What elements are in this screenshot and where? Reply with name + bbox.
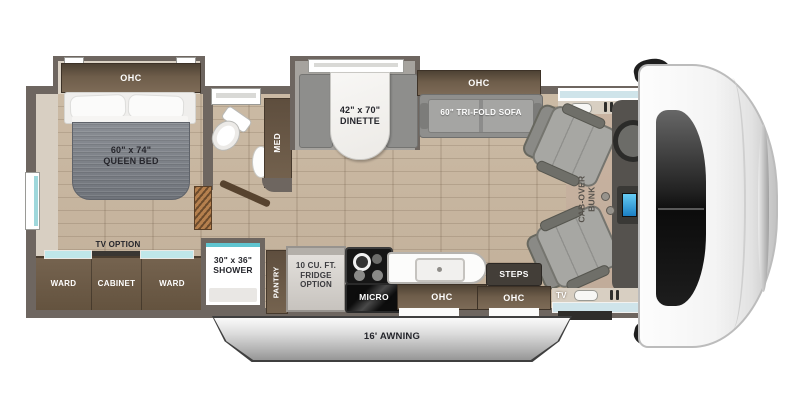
awning: 16' AWNING — [212, 316, 572, 362]
living-ohc-cabinet: OHC — [417, 70, 541, 96]
rear-window-glass — [34, 176, 38, 226]
fridge-line3: OPTION — [288, 280, 344, 290]
burner-ring — [353, 253, 371, 271]
ward-left-label: WARD — [51, 279, 77, 288]
shower-label: 30" x 36" SHOWER — [206, 255, 260, 275]
med-cabinet: MED — [264, 98, 292, 188]
ward-left: WARD — [36, 258, 92, 310]
dinette-bench-right — [386, 74, 418, 148]
fridge-line1: 10 CU. FT. — [288, 261, 344, 271]
cabinet-label: CABINET — [98, 279, 136, 288]
shower-name: SHOWER — [206, 265, 260, 275]
trifold-sofa: 60" TRI-FOLD SOFA — [419, 94, 543, 138]
console-screen — [622, 193, 637, 217]
rear-window — [25, 172, 40, 230]
cab-sill-mark-1 — [610, 290, 613, 300]
entry-ohc-label: OHC — [503, 293, 525, 303]
microwave: MICRO — [345, 283, 403, 313]
cab-over-bunk: CAB-OVER BUNK — [566, 168, 606, 230]
kitchen-bottom-window — [399, 308, 459, 317]
bed-name: QUEEN BED — [73, 156, 189, 167]
fridge-line2: FRIDGE — [288, 271, 344, 281]
kitchen-counter — [387, 252, 487, 284]
fridge-top-band — [288, 248, 344, 255]
burner-2 — [372, 270, 383, 281]
bedroom-ohc-cabinet: OHC — [61, 63, 201, 93]
floorplan-canvas: OHC 60" x 74" QUEEN BED MED 42" x 70" DI… — [0, 0, 800, 408]
med-label: MED — [273, 133, 283, 153]
kitchen-ohc-label: OHC — [431, 292, 453, 302]
fridge-label: 10 CU. FT. FRIDGE OPTION — [288, 261, 344, 290]
bed-label: 60" x 74" QUEEN BED — [73, 145, 189, 167]
dinette-table: 42" x 70" DINETTE — [330, 72, 390, 160]
pantry: PANTRY — [266, 250, 288, 314]
bath-wall-corner — [262, 178, 292, 192]
entry-door — [489, 308, 539, 317]
bunk-label-line1: CAB-OVER — [576, 176, 586, 223]
console-knob-1 — [601, 192, 610, 201]
shower: 30" x 36" SHOWER — [201, 238, 265, 310]
sofa-label: 60" TRI-FOLD SOFA — [420, 108, 542, 117]
burner-3 — [372, 254, 382, 264]
microwave-label: MICRO — [359, 293, 389, 303]
dinette-label: 42" x 70" DINETTE — [331, 105, 389, 127]
bed-size: 60" x 74" — [73, 145, 189, 156]
dinette-bench-left — [299, 74, 333, 148]
cab-sill-bottom: TV — [552, 288, 642, 302]
windshield-seam — [658, 208, 704, 210]
dinette-window-glass — [314, 63, 398, 67]
awning-fabric: 16' AWNING — [214, 318, 570, 360]
cab-sill-mark-2 — [616, 290, 619, 300]
bedroom-ohc-label: OHC — [120, 73, 142, 83]
entry-ohc-cabinet: OHC — [477, 286, 551, 310]
bunk-label-line2: BUNK — [586, 176, 596, 223]
bedroom-window-left — [44, 250, 92, 259]
cab-window-top-glass — [560, 91, 640, 98]
front-bumper — [758, 124, 769, 292]
accordion-door — [194, 186, 212, 230]
dinette-name: DINETTE — [331, 116, 389, 127]
cab-tv-label: TV — [556, 291, 567, 300]
living-ohc-label: OHC — [468, 78, 490, 88]
cooktop — [345, 247, 393, 285]
hood-accent-line — [718, 78, 746, 330]
steps-label: STEPS — [499, 270, 528, 280]
console-knob-2 — [606, 206, 615, 215]
bed-blanket: 60" x 74" QUEEN BED — [72, 122, 190, 200]
fridge: 10 CU. FT. FRIDGE OPTION — [286, 246, 346, 312]
faucet — [437, 267, 442, 272]
pantry-label: PANTRY — [273, 266, 282, 298]
shower-size: 30" x 36" — [206, 255, 260, 265]
shower-accent — [206, 243, 260, 247]
front-cap — [638, 64, 778, 348]
bedroom-lower-cabinets: WARD CABINET WARD — [36, 256, 202, 310]
dinette-window — [308, 59, 404, 73]
bedroom-window-right — [140, 250, 194, 259]
shower-pan — [209, 288, 257, 302]
latch-mark-1 — [604, 102, 607, 112]
tv-option-label: TV OPTION — [84, 240, 152, 250]
bath-window — [211, 88, 261, 105]
dinette-size: 42" x 70" — [331, 105, 389, 116]
kitchen-ohc-cabinet: OHC — [397, 284, 487, 310]
cabinet-mid: CABINET — [92, 258, 142, 310]
entry-steps: STEPS — [486, 263, 542, 286]
ward-right-label: WARD — [159, 279, 185, 288]
burner-1 — [354, 270, 365, 281]
bath-window-glass — [216, 93, 256, 98]
windshield — [656, 110, 706, 306]
ward-right: WARD — [142, 258, 202, 310]
cab-over-bunk-label: CAB-OVER BUNK — [576, 176, 596, 223]
cab-sill-pill — [574, 290, 598, 301]
awning-label: 16' AWNING — [214, 331, 570, 342]
